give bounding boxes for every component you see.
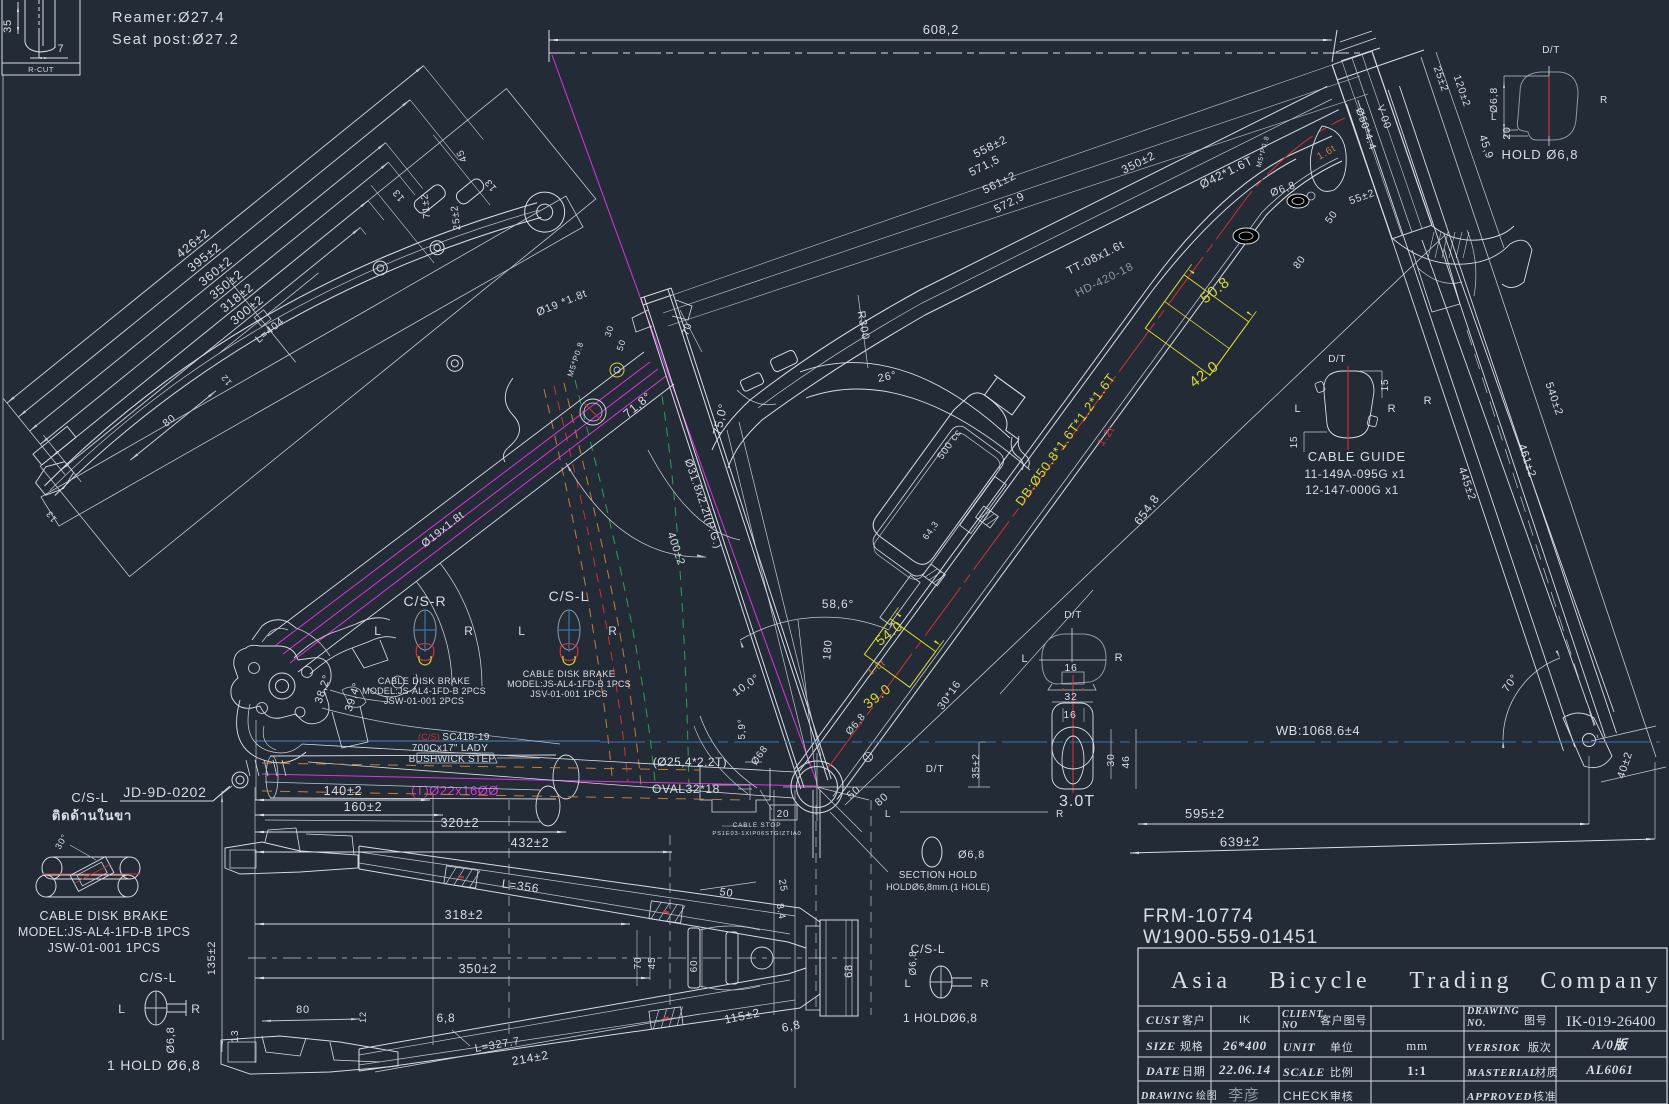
svg-text:Ø6,8: Ø6,8 [1488, 87, 1500, 113]
svg-text:SIZE: SIZE [1146, 1039, 1176, 1053]
svg-text:80: 80 [296, 1004, 310, 1016]
svg-text:HOLDØ6,8mm.(1 HOLE): HOLDØ6,8mm.(1 HOLE) [886, 882, 990, 892]
svg-text:R: R [1600, 95, 1608, 106]
svg-text:(Ø25,4*2,2T): (Ø25,4*2,2T) [653, 755, 727, 769]
svg-text:Company: Company [1540, 968, 1661, 994]
svg-text:核准: 核准 [1533, 1089, 1557, 1103]
svg-text:绘图: 绘图 [1196, 1089, 1218, 1102]
svg-text:432±2: 432±2 [511, 836, 550, 850]
svg-text:FRM-10774: FRM-10774 [1143, 906, 1254, 927]
svg-text:D/T: D/T [1542, 45, 1560, 56]
svg-text:20: 20 [1501, 126, 1513, 139]
svg-text:135±2: 135±2 [206, 941, 218, 976]
svg-text:1 HOLDØ6,8: 1 HOLDØ6,8 [903, 1011, 977, 1025]
svg-text:50: 50 [719, 886, 734, 900]
svg-text:595±2: 595±2 [1185, 806, 1225, 821]
svg-text:规格: 规格 [1180, 1039, 1204, 1053]
svg-text:L: L [518, 624, 525, 638]
svg-text:L: L [118, 1002, 125, 1016]
svg-text:L: L [905, 978, 912, 990]
svg-text:160±2: 160±2 [344, 800, 383, 814]
svg-text:12: 12 [358, 1011, 368, 1023]
svg-text:45: 45 [647, 957, 658, 970]
svg-text:JD-9D-0202: JD-9D-0202 [123, 784, 206, 800]
svg-text:5,9°: 5,9° [737, 718, 748, 739]
svg-text:180: 180 [821, 639, 835, 661]
svg-text:客户图号: 客户图号 [1320, 1013, 1367, 1027]
svg-text:C/S-L: C/S-L [71, 790, 108, 805]
svg-text:图号: 图号 [1524, 1014, 1548, 1027]
svg-text:Ø6,8: Ø6,8 [958, 849, 985, 861]
svg-text:Ø6,8: Ø6,8 [165, 1026, 177, 1053]
svg-text:60: 60 [689, 960, 700, 973]
svg-text:35±2: 35±2 [971, 753, 982, 778]
svg-text:R: R [464, 624, 473, 638]
svg-text:22.06.14: 22.06.14 [1218, 1062, 1271, 1077]
svg-text:WB:1068.6±4: WB:1068.6±4 [1276, 723, 1360, 738]
svg-text:CUST: CUST [1146, 1013, 1180, 1027]
svg-text:58,6°: 58,6° [822, 597, 854, 611]
svg-text:MODEL:JS-AL4-1FD-B 2PCS: MODEL:JS-AL4-1FD-B 2PCS [362, 686, 486, 696]
svg-text:CLIENT: CLIENT [1282, 1009, 1324, 1020]
svg-text:C/S-R: C/S-R [403, 593, 446, 609]
svg-text:L: L [374, 624, 381, 638]
svg-text:SCALE: SCALE [1283, 1065, 1325, 1079]
svg-text:350±2: 350±2 [459, 962, 498, 976]
svg-text:R: R [1056, 809, 1064, 820]
svg-text:客户: 客户 [1182, 1013, 1206, 1027]
svg-text:CABLE GUIDE: CABLE GUIDE [1308, 449, 1406, 464]
svg-text:W1900-559-01451: W1900-559-01451 [1143, 927, 1318, 948]
svg-text:D/T: D/T [1328, 354, 1346, 365]
svg-text:JSW-01-001 1PCS: JSW-01-001 1PCS [48, 941, 161, 955]
svg-text:OVAL32*18: OVAL32*18 [652, 782, 720, 796]
svg-text:L: L [1491, 112, 1497, 123]
svg-text:32: 32 [1064, 691, 1077, 703]
svg-text:SECTION HOLD: SECTION HOLD [899, 870, 978, 881]
svg-text:DRAWING: DRAWING [1140, 1091, 1193, 1102]
svg-text:30: 30 [1105, 753, 1117, 766]
svg-text:(C/S): (C/S) [418, 732, 440, 742]
svg-text:35: 35 [2, 19, 14, 33]
svg-text:12-147-000G x1: 12-147-000G x1 [1305, 483, 1399, 497]
svg-text:L: L [1022, 653, 1029, 665]
svg-text:R: R [1424, 395, 1433, 407]
svg-text:70: 70 [633, 957, 644, 970]
svg-text:审核: 审核 [1330, 1089, 1354, 1103]
svg-text:6,8: 6,8 [436, 1011, 455, 1025]
svg-text:PS1E03-1XIP06STGIZTIA0: PS1E03-1XIP06STGIZTIA0 [712, 831, 801, 837]
svg-text:MODEL:JS-AL4-1FD-B 1PCS: MODEL:JS-AL4-1FD-B 1PCS [507, 679, 631, 689]
svg-text:CHECK: CHECK [1283, 1089, 1329, 1103]
svg-text:7: 7 [58, 43, 65, 55]
svg-text:UNIT: UNIT [1283, 1040, 1316, 1054]
svg-text:ติดด้านในขา: ติดด้านในขา [52, 807, 132, 823]
svg-text:46: 46 [1120, 755, 1132, 768]
svg-text:AL6061: AL6061 [1585, 1062, 1633, 1077]
svg-text:25: 25 [776, 878, 789, 892]
svg-text:NO.: NO. [1466, 1018, 1486, 1029]
svg-text:L: L [1295, 403, 1302, 415]
svg-text:SC418-19: SC418-19 [442, 732, 490, 743]
svg-text:16: 16 [1063, 709, 1076, 721]
svg-text:日期: 日期 [1182, 1065, 1206, 1078]
svg-text:(T)Ø22x16ØØ: (T)Ø22x16ØØ [411, 783, 499, 798]
svg-text:639±2: 639±2 [1220, 833, 1260, 849]
svg-text:MASTERIAL: MASTERIAL [1466, 1067, 1537, 1079]
svg-text:C/S-L: C/S-L [549, 588, 590, 604]
svg-text:比例: 比例 [1330, 1065, 1354, 1079]
svg-text:R: R [608, 624, 617, 638]
svg-text:单位: 单位 [1330, 1040, 1354, 1054]
svg-text:MODEL:JS-AL4-1FD-B 1PCS: MODEL:JS-AL4-1FD-B 1PCS [18, 925, 190, 939]
svg-text:VERSIOK: VERSIOK [1467, 1042, 1520, 1054]
svg-text:11-149A-095G x1: 11-149A-095G x1 [1304, 467, 1405, 481]
svg-text:DATE: DATE [1145, 1064, 1181, 1078]
svg-text:140±2: 140±2 [324, 784, 363, 798]
svg-text:IK: IK [1239, 1014, 1251, 1026]
svg-text:608,2: 608,2 [923, 22, 960, 37]
svg-text:JSW-01-001 2PCS: JSW-01-001 2PCS [384, 696, 464, 706]
svg-text:13: 13 [230, 1030, 241, 1043]
svg-text:Trading: Trading [1409, 968, 1512, 994]
svg-text:APPROVED: APPROVED [1466, 1091, 1532, 1103]
svg-text:A/0版: A/0版 [1592, 1037, 1630, 1052]
svg-text:IK-019-26400: IK-019-26400 [1566, 1014, 1655, 1030]
svg-text:R: R [1388, 403, 1397, 415]
svg-text:CABLE DISK BRAKE: CABLE DISK BRAKE [39, 909, 168, 923]
svg-text:JSV-01-001 1PCS: JSV-01-001 1PCS [530, 689, 608, 699]
svg-text:R: R [981, 978, 990, 990]
svg-text:材质: 材质 [1535, 1065, 1559, 1079]
svg-text:320±2: 320±2 [441, 816, 480, 830]
svg-text:NO: NO [1281, 1020, 1298, 1031]
svg-text:版次: 版次 [1528, 1040, 1552, 1054]
svg-text:700Cx17" LADY: 700Cx17" LADY [412, 743, 488, 754]
svg-text:R: R [1115, 652, 1124, 664]
svg-text:CABLE DISK BRAKE: CABLE DISK BRAKE [378, 676, 470, 686]
svg-text:26*400: 26*400 [1222, 1038, 1267, 1053]
svg-text:Reamer:Ø27.4: Reamer:Ø27.4 [112, 10, 225, 26]
svg-text:L: L [885, 809, 891, 820]
svg-text:318±2: 318±2 [445, 908, 484, 922]
svg-text:R-CUT: R-CUT [28, 65, 54, 74]
svg-text:mm: mm [1406, 1038, 1428, 1053]
svg-text:D/T: D/T [926, 764, 945, 775]
svg-text:3.0T: 3.0T [1059, 793, 1095, 810]
svg-text:C/S-L: C/S-L [139, 970, 176, 985]
svg-text:68: 68 [843, 964, 855, 978]
svg-text:CABLE DISK BRAKE: CABLE DISK BRAKE [523, 669, 615, 679]
svg-text:Asia: Asia [1171, 968, 1231, 994]
svg-text:李彦: 李彦 [1228, 1087, 1260, 1104]
svg-text:1 HOLD Ø6,8: 1 HOLD Ø6,8 [107, 1057, 201, 1073]
svg-text:HOLD Ø6,8: HOLD Ø6,8 [1502, 147, 1579, 162]
svg-text:15: 15 [1289, 436, 1300, 449]
svg-text:Ø6,8: Ø6,8 [908, 951, 919, 976]
svg-text:15: 15 [1380, 379, 1391, 392]
svg-text:1:1: 1:1 [1407, 1063, 1427, 1078]
svg-text:DRAWING: DRAWING [1466, 1006, 1519, 1017]
svg-text:R: R [191, 1002, 200, 1016]
svg-text:Bicycle: Bicycle [1269, 968, 1370, 994]
svg-text:Seat post:Ø27.2: Seat post:Ø27.2 [112, 32, 239, 48]
svg-text:20: 20 [777, 809, 790, 820]
